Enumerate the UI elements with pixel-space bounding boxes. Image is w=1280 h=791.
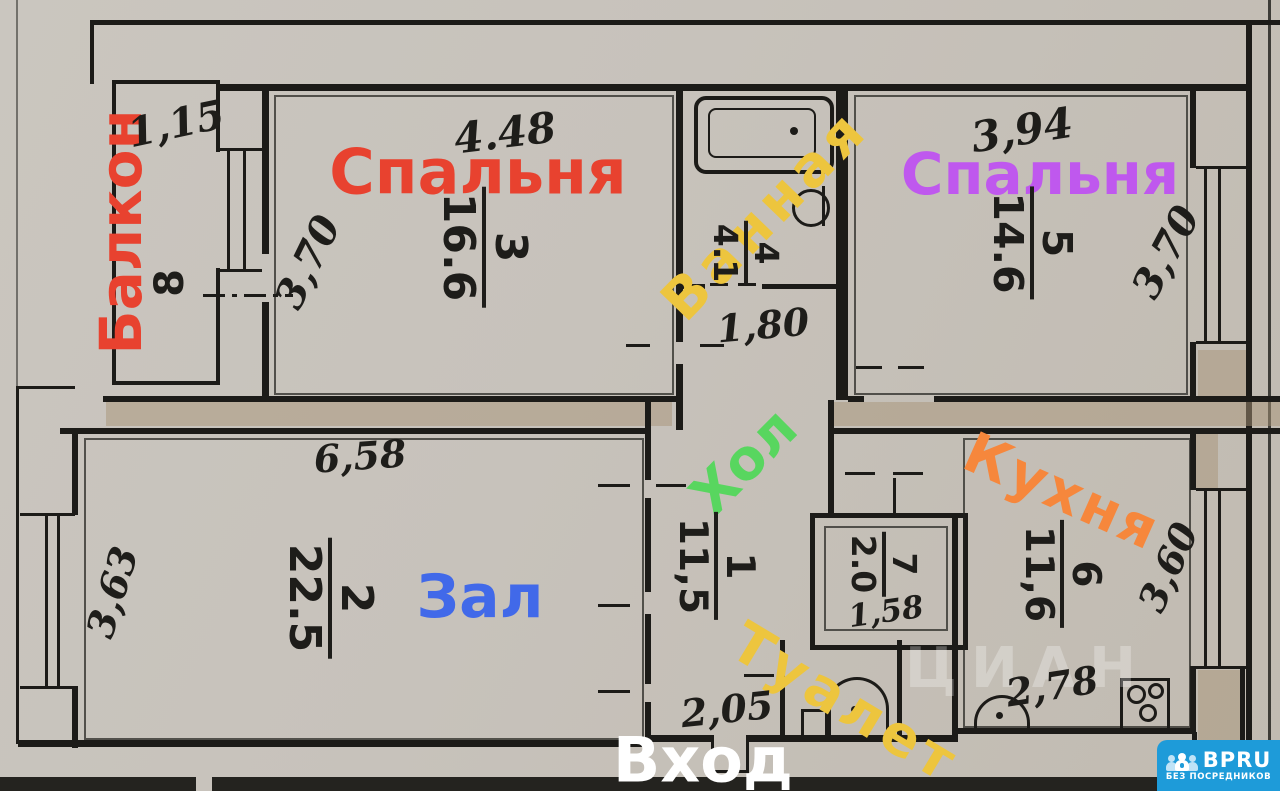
dim-bathroom-passage: 1,80: [715, 299, 811, 352]
door-dash: [845, 472, 875, 475]
wall: [645, 396, 651, 480]
room-number: 6: [1066, 560, 1105, 587]
logo-tagline: БЕЗ ПОСРЕДНИКОВ: [1166, 773, 1271, 782]
room-number-balcony: 8: [147, 269, 193, 297]
scan-border: [0, 777, 196, 791]
wall: [1196, 430, 1218, 488]
wall: [112, 80, 220, 84]
room-area-living: 222.5: [282, 544, 378, 653]
window-icon: [1204, 488, 1207, 669]
wall: [1198, 350, 1246, 400]
wall: [830, 428, 1280, 434]
wall: [676, 364, 683, 430]
wall: [934, 396, 1280, 402]
wall: [72, 428, 78, 515]
room-area-bathroom: 44.1: [709, 224, 783, 282]
room-area: 16.6: [436, 193, 480, 302]
wall: [90, 20, 1280, 25]
room-number: 3: [488, 232, 532, 263]
wall: [762, 284, 842, 289]
room-area-kitchen: 611,6: [1019, 526, 1105, 622]
wall: [828, 400, 834, 515]
door-dash: [626, 344, 650, 347]
floorplan-image: ЦИАН Балкон Спальня Ванная Спальня Хол К…: [0, 0, 1280, 791]
wall: [90, 20, 94, 84]
bpru-logo: BPRU БЕЗ ПОСРЕДНИКОВ: [1157, 740, 1280, 791]
wall: [216, 268, 220, 385]
room-number: 7: [888, 553, 921, 576]
dim-hall-entry: 2,05: [679, 682, 776, 736]
window-icon: [1218, 488, 1221, 669]
window-icon: [45, 513, 48, 689]
room-label-hall: Хол: [678, 396, 811, 529]
window-icon: [57, 513, 60, 689]
room-number: 4: [750, 242, 783, 265]
room-area: 4.1: [709, 224, 742, 282]
logo-brand: BPRU: [1203, 750, 1272, 771]
room-area-toilet: 72.0: [847, 535, 921, 593]
room-area: 2.0: [847, 535, 880, 593]
stove-icon: [1148, 683, 1164, 699]
room-area-bedroom3: 316.6: [436, 193, 532, 302]
window-icon: [218, 269, 262, 272]
wall: [848, 396, 864, 402]
window-icon: [243, 150, 246, 270]
wall: [16, 386, 75, 389]
stove-icon: [1139, 704, 1157, 722]
wall: [645, 498, 651, 592]
wall: [18, 740, 648, 747]
room-label-living: Зал: [416, 562, 543, 632]
window-icon: [227, 150, 230, 270]
door-dash: [893, 472, 923, 475]
window-icon: [1204, 166, 1207, 344]
room-area: 14.6: [987, 192, 1028, 293]
room-area: 11,5: [673, 518, 712, 614]
wall: [16, 386, 19, 744]
wall: [645, 614, 651, 684]
room-area: 22.5: [282, 544, 326, 653]
wall: [1190, 84, 1196, 168]
wall: [262, 302, 269, 398]
room-area-bedroom5: 514.6: [987, 192, 1077, 293]
dim-balcony-width: 1,15: [123, 91, 228, 157]
wall: [103, 396, 676, 402]
wall: [952, 513, 958, 735]
sink-icon: [996, 712, 1003, 719]
wall: [262, 84, 269, 254]
wall: [1190, 342, 1196, 400]
wall: [16, 0, 18, 386]
wall: [834, 402, 1280, 426]
wall: [106, 402, 672, 426]
door-dash: [898, 366, 924, 369]
door-dash: [893, 478, 896, 514]
room-number: 2: [334, 583, 378, 614]
room-number: 1: [720, 552, 759, 579]
people-icon: [1166, 749, 1198, 771]
dim-living-width: 6,58: [312, 430, 407, 481]
wall: [112, 381, 220, 385]
room-area: 11,6: [1019, 526, 1058, 622]
window-icon: [218, 148, 262, 151]
room-area-hall: 111,5: [673, 518, 759, 614]
window-icon: [1218, 166, 1221, 344]
door-dash: [856, 366, 882, 369]
room-number: 5: [1036, 229, 1077, 258]
wall: [220, 84, 1250, 91]
wall: [72, 686, 78, 748]
